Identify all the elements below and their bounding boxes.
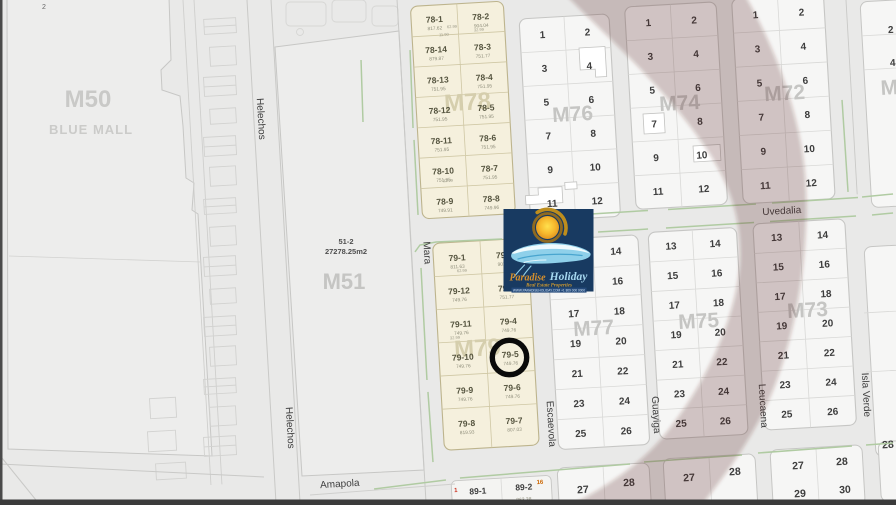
svg-text:20: 20 — [615, 336, 627, 348]
svg-text:4: 4 — [800, 42, 807, 53]
svg-text:749.76: 749.76 — [501, 327, 516, 334]
svg-text:5: 5 — [543, 97, 550, 108]
svg-text:78-8: 78-8 — [482, 193, 500, 204]
svg-text:819.93: 819.93 — [460, 429, 475, 436]
svg-text:18: 18 — [713, 298, 725, 310]
svg-text:27: 27 — [577, 484, 590, 497]
svg-text:24: 24 — [825, 377, 837, 389]
svg-text:16: 16 — [711, 268, 723, 280]
svg-text:7: 7 — [651, 119, 658, 130]
svg-text:749.76: 749.76 — [505, 394, 520, 401]
svg-text:62.99: 62.99 — [447, 24, 458, 30]
svg-text:78-3: 78-3 — [474, 41, 492, 52]
svg-text:749.76: 749.76 — [458, 396, 473, 403]
svg-text:26: 26 — [827, 407, 839, 419]
svg-text:751.95: 751.95 — [481, 144, 496, 151]
svg-text:21: 21 — [571, 369, 583, 381]
svg-text:23: 23 — [573, 399, 585, 411]
svg-text:11: 11 — [653, 186, 665, 198]
svg-text:78-6: 78-6 — [479, 133, 497, 144]
svg-text:78-1: 78-1 — [426, 14, 444, 25]
svg-text:2: 2 — [888, 25, 895, 36]
svg-text:9: 9 — [653, 153, 660, 164]
svg-text:79-9: 79-9 — [456, 385, 474, 396]
svg-text:751.95: 751.95 — [483, 174, 498, 181]
svg-text:62.99: 62.99 — [457, 268, 468, 274]
svg-text:11.90: 11.90 — [439, 32, 450, 38]
svg-text:78-10: 78-10 — [432, 165, 455, 176]
svg-text:Mara: Mara — [420, 241, 432, 265]
svg-text:79-10: 79-10 — [452, 351, 475, 362]
svg-text:749.76: 749.76 — [456, 363, 471, 370]
svg-text:Paradise: Paradise — [509, 273, 546, 284]
svg-text:16: 16 — [612, 276, 624, 288]
svg-text:19: 19 — [670, 330, 682, 342]
svg-text:79-4: 79-4 — [500, 316, 518, 327]
svg-text:807.03: 807.03 — [507, 427, 522, 434]
svg-text:78-11: 78-11 — [430, 135, 452, 146]
svg-text:79-5: 79-5 — [501, 349, 519, 360]
svg-text:751.95: 751.95 — [477, 83, 492, 90]
svg-text:3: 3 — [541, 64, 548, 75]
svg-text:12: 12 — [805, 178, 817, 190]
svg-text:M76: M76 — [552, 102, 594, 127]
svg-text:5: 5 — [649, 85, 656, 96]
svg-text:17: 17 — [568, 309, 580, 321]
svg-text:Amapola: Amapola — [320, 478, 360, 491]
svg-text:751.95: 751.95 — [433, 116, 448, 123]
svg-text:817.62: 817.62 — [427, 25, 442, 32]
svg-text:751.95: 751.95 — [479, 114, 494, 121]
svg-text:10: 10 — [803, 144, 815, 156]
svg-text:749.76: 749.76 — [452, 297, 467, 304]
svg-text:79-8: 79-8 — [458, 418, 476, 429]
svg-text:14: 14 — [709, 239, 721, 251]
svg-text:27278.25m2: 27278.25m2 — [325, 247, 367, 256]
svg-text:8: 8 — [804, 110, 811, 121]
svg-text:751.77: 751.77 — [499, 294, 514, 301]
svg-text:10: 10 — [696, 150, 708, 162]
svg-text:17: 17 — [669, 300, 681, 312]
svg-text:78-7: 78-7 — [481, 163, 499, 174]
svg-text:M50: M50 — [65, 86, 112, 113]
svg-text:28: 28 — [836, 456, 849, 469]
svg-text:6: 6 — [588, 95, 595, 106]
svg-text:16: 16 — [818, 259, 830, 271]
svg-text:12: 12 — [698, 184, 710, 196]
svg-text:2: 2 — [42, 4, 46, 11]
svg-text:78-14: 78-14 — [425, 44, 448, 55]
svg-text:21: 21 — [672, 359, 684, 371]
svg-text:Holiday: Holiday — [549, 271, 589, 283]
svg-text:78-4: 78-4 — [475, 72, 493, 83]
svg-text:6: 6 — [802, 76, 809, 87]
svg-text:751.95: 751.95 — [431, 86, 446, 93]
svg-text:18: 18 — [613, 306, 625, 318]
svg-text:751.77: 751.77 — [476, 53, 491, 60]
svg-text:879.87: 879.87 — [429, 56, 444, 63]
svg-text:10: 10 — [589, 162, 601, 174]
svg-text:2: 2 — [584, 27, 591, 38]
svg-text:32.99: 32.99 — [443, 178, 454, 184]
svg-text:13: 13 — [665, 241, 677, 253]
svg-text:16: 16 — [536, 480, 544, 486]
svg-text:78-5: 78-5 — [477, 102, 495, 113]
svg-text:20: 20 — [822, 318, 834, 330]
svg-text:BLUE MALL: BLUE MALL — [49, 122, 133, 137]
svg-text:7: 7 — [545, 131, 552, 142]
svg-text:749.91: 749.91 — [438, 207, 453, 214]
svg-text:22: 22 — [617, 366, 629, 378]
svg-text:M51: M51 — [323, 269, 366, 294]
svg-text:8: 8 — [590, 129, 597, 140]
svg-text:M7: M7 — [880, 75, 896, 100]
svg-text:12: 12 — [591, 196, 603, 208]
svg-text:78-9: 78-9 — [436, 196, 454, 207]
svg-text:30: 30 — [839, 484, 852, 497]
svg-text:WWW.PARADISEHOLIDAY.COM +1 809: WWW.PARADISEHOLIDAY.COM +1 809 000 0000 — [513, 288, 585, 292]
svg-text:89-1: 89-1 — [469, 485, 487, 496]
svg-text:Guayiga: Guayiga — [649, 396, 662, 434]
svg-text:4: 4 — [890, 58, 896, 69]
svg-text:14: 14 — [817, 230, 829, 242]
svg-text:1: 1 — [539, 30, 546, 41]
svg-text:2: 2 — [798, 7, 805, 18]
svg-text:28: 28 — [729, 466, 742, 479]
svg-text:79-1: 79-1 — [448, 252, 466, 263]
svg-text:78-13: 78-13 — [427, 74, 450, 85]
svg-text:749.76: 749.76 — [503, 360, 518, 367]
svg-text:78-12: 78-12 — [428, 105, 451, 116]
svg-text:28: 28 — [882, 439, 895, 452]
svg-text:78-2: 78-2 — [472, 11, 490, 22]
svg-text:79-7: 79-7 — [505, 415, 523, 426]
svg-text:51-2: 51-2 — [338, 237, 353, 246]
svg-text:23: 23 — [779, 380, 791, 392]
svg-text:24: 24 — [619, 396, 631, 408]
svg-text:32.99: 32.99 — [450, 335, 461, 341]
svg-text:29: 29 — [794, 488, 807, 501]
svg-text:9: 9 — [547, 165, 554, 176]
svg-text:22: 22 — [824, 348, 836, 360]
svg-text:18: 18 — [820, 289, 832, 301]
svg-text:79-6: 79-6 — [503, 382, 521, 393]
svg-text:27: 27 — [792, 460, 805, 473]
svg-text:14: 14 — [610, 246, 622, 258]
svg-text:32.99: 32.99 — [474, 27, 485, 33]
svg-text:26: 26 — [620, 426, 632, 438]
svg-text:4: 4 — [586, 61, 593, 72]
svg-text:751.95: 751.95 — [434, 147, 449, 154]
svg-text:25: 25 — [781, 409, 793, 421]
svg-text:15: 15 — [667, 271, 679, 283]
svg-text:25: 25 — [575, 429, 587, 441]
svg-text:79-12: 79-12 — [448, 285, 471, 296]
svg-text:23: 23 — [674, 389, 686, 401]
svg-text:89-2: 89-2 — [515, 482, 533, 493]
svg-text:19: 19 — [570, 339, 582, 351]
svg-text:749.96: 749.96 — [484, 205, 499, 212]
svg-text:79-11: 79-11 — [450, 318, 472, 329]
